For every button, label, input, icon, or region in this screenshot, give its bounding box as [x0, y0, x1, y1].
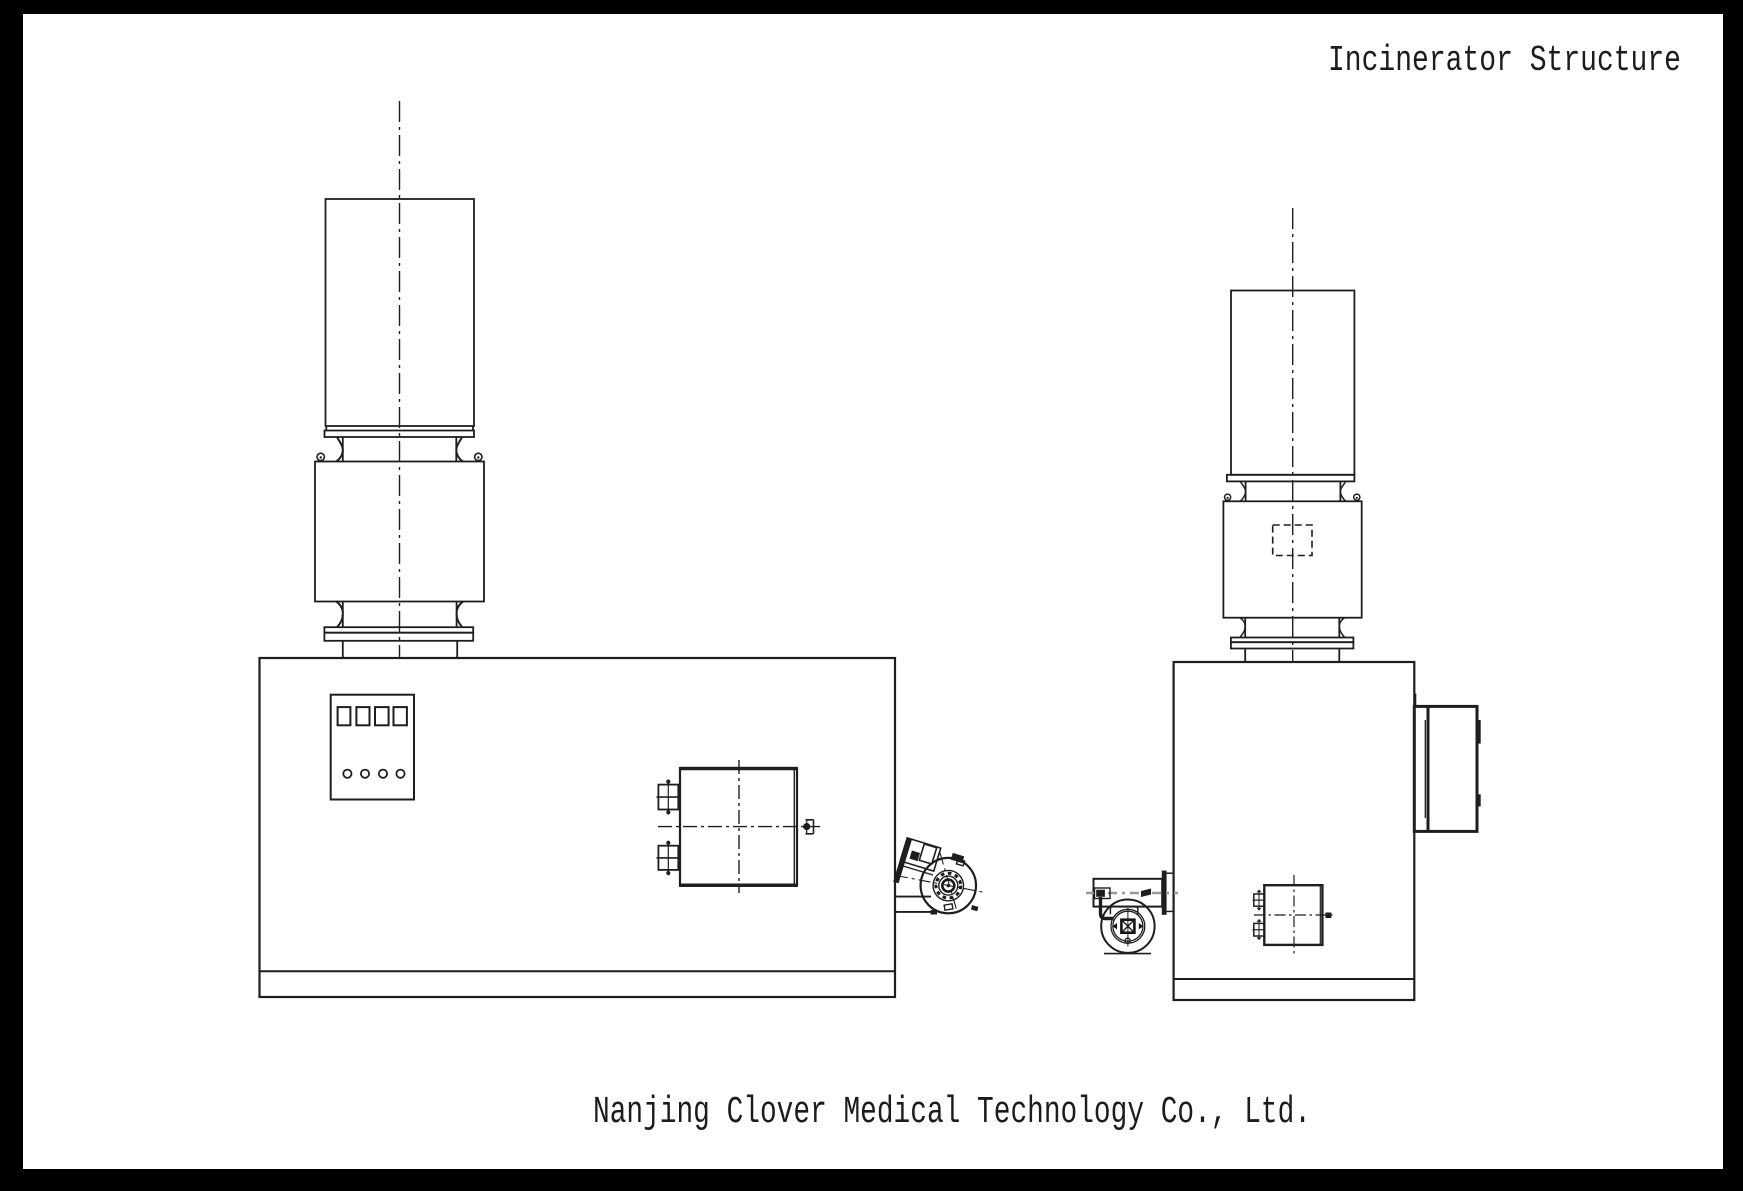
svg-text:Incinerator Structure: Incinerator Structure	[1328, 40, 1681, 81]
svg-text:Nanjing Clover Medical Technol: Nanjing Clover Medical Technology Co., L…	[593, 1091, 1311, 1134]
